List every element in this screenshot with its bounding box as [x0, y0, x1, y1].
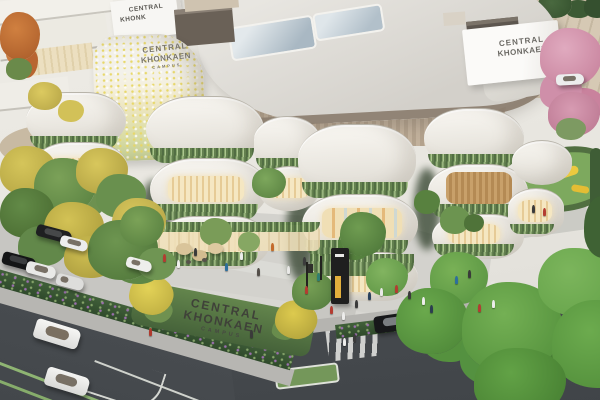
- pylon-sign: [331, 248, 349, 304]
- pedestrian: [355, 300, 358, 308]
- tree: [252, 168, 286, 198]
- pedestrian: [330, 306, 333, 314]
- tree: [6, 58, 32, 80]
- tower-tier: [512, 140, 572, 185]
- tree: [366, 258, 408, 296]
- cafe-table: [202, 258, 207, 262]
- tree: [414, 190, 440, 214]
- pedestrian: [380, 288, 383, 296]
- tree: [556, 118, 586, 140]
- hanging-greenery: [510, 224, 554, 234]
- pedestrian: [532, 205, 535, 213]
- pedestrian: [468, 270, 471, 278]
- banner-flag: [308, 264, 313, 273]
- parked-car-white: [556, 73, 585, 85]
- tree: [396, 288, 468, 354]
- flowering-tree-yellow: [28, 82, 62, 110]
- rooftop-step: [443, 11, 466, 26]
- tree: [238, 232, 260, 252]
- lit-interior: [518, 200, 552, 222]
- umbrella: [176, 243, 192, 255]
- pedestrian: [395, 285, 398, 293]
- pedestrian: [353, 334, 356, 342]
- pedestrian: [240, 252, 243, 260]
- pedestrian: [408, 291, 411, 299]
- flowering-tree-yellow: [58, 100, 84, 122]
- pedestrian: [225, 263, 228, 271]
- wood-slat-wall: [446, 172, 512, 204]
- pedestrian: [303, 257, 306, 265]
- pedestrian: [287, 266, 290, 274]
- pedestrian: [478, 304, 481, 312]
- lit-interior: [168, 176, 244, 202]
- flowering-tree-orange: [0, 12, 40, 60]
- tree: [200, 218, 232, 246]
- pedestrian: [250, 330, 253, 338]
- tree: [292, 272, 334, 310]
- pedestrian: [194, 248, 197, 256]
- tree: [120, 206, 164, 246]
- hanging-greenery: [150, 222, 320, 232]
- pedestrian: [422, 297, 425, 305]
- pedestrian: [543, 208, 546, 216]
- pedestrian: [343, 338, 346, 346]
- pylon-accent: [335, 276, 341, 298]
- pedestrian: [177, 260, 180, 268]
- pedestrian: [317, 273, 320, 281]
- pedestrian: [430, 305, 433, 313]
- rooftop-sign-line2: KHONK: [106, 12, 161, 27]
- pedestrian: [163, 254, 166, 262]
- cafe-table: [186, 260, 191, 264]
- pedestrian: [342, 312, 345, 320]
- umbrella: [208, 243, 223, 254]
- pedestrian: [257, 268, 260, 276]
- pylon-logo: [335, 254, 344, 257]
- banner-pole: [320, 256, 322, 280]
- pedestrian: [455, 276, 458, 284]
- pedestrian: [271, 243, 274, 251]
- tree: [464, 214, 484, 232]
- pedestrian: [305, 286, 308, 294]
- tower-sign: CENTRAL KHONKAEN CAMPUS: [134, 40, 198, 71]
- pedestrian: [492, 300, 495, 308]
- pedestrian: [368, 292, 371, 300]
- architectural-rendering: CENTRAL KHONKAEN CAMPUS CENTRAL KHONK CE…: [0, 0, 600, 400]
- pedestrian: [149, 328, 152, 336]
